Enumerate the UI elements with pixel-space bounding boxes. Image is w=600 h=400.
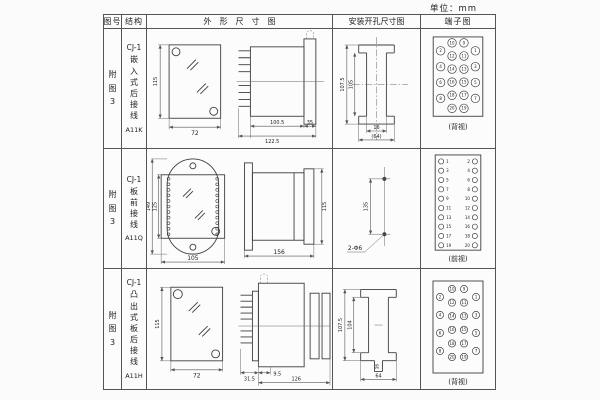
outline-cell-row3: 115 72 31.5 9.5 126 [147,269,333,389]
extension-lines [345,45,394,142]
dim-slot-width: 16 [373,125,379,131]
dim-slot-width: 16 [374,364,379,370]
view-label: (背视) [448,377,468,386]
dim-pin-depth: 31.5 [244,377,255,383]
figure-no-row1: 附图3 [104,29,122,149]
terminal-circles: 1357911131517192468101214161820 [439,159,478,248]
outline-cell-row2: 149 125 105 156 115 [147,149,333,269]
dim-offset: 9.5 [273,372,281,378]
svg-text:18: 18 [465,233,471,238]
view-label: (前视) [448,254,468,263]
install-hole-drawing-a11k: 107.5 105 16 (64) [333,29,420,148]
svg-text:11: 11 [461,300,467,305]
dim-outer-height: 107.5 [340,77,346,91]
dim-flange: 35 [307,120,313,126]
svg-text:8: 8 [439,348,442,353]
svg-text:19: 19 [446,243,452,248]
dimension-lines [160,45,316,136]
structure-model: CJ-1 [127,175,142,184]
terminal-circles: 2468101214161820911131517191357 [436,285,479,360]
front-view [169,45,221,118]
front-view [171,287,223,361]
svg-text:12: 12 [450,53,456,58]
dim-depth-total: 122.5 [265,139,279,145]
svg-text:18: 18 [449,341,455,346]
terminal-cell-row3: 2468101214161820911131517191357 (背视) [421,269,495,389]
svg-text:10: 10 [449,286,455,291]
svg-text:6: 6 [467,178,470,183]
svg-text:5: 5 [475,330,478,335]
svg-text:19: 19 [461,106,467,111]
svg-text:2: 2 [467,159,470,164]
terminal-circles: 2468101214161820911131517191357 [436,39,479,113]
svg-text:1: 1 [446,159,449,164]
dim-depth-total: 126 [291,377,300,383]
dim-outer-height: 107.5 [338,318,344,332]
dimension-table: 图号 结构 外形尺寸图 安装开孔尺寸图 端子图 附图3 CJ-1 嵌入式后接线 … [103,14,496,390]
install-hole-drawing-a11q: 135 2-Φ6 [333,149,420,268]
svg-text:10: 10 [450,40,456,45]
svg-text:20: 20 [450,106,456,111]
svg-text:3: 3 [475,312,478,317]
dim-overall-width: 64 [375,373,381,379]
header-structure: 结构 [122,15,147,29]
terminal-drawing-rear-a11k: 2468101214161820911131517191357 (背视) [421,29,495,148]
terminal-drawing-front-a11q: 1357911131517192468101214161820 (前视) [421,149,495,268]
hook-dashed [306,31,313,39]
structure-model: CJ-1 [127,278,142,287]
svg-text:8: 8 [467,187,470,192]
structure-mounting: 嵌入式后接线 [129,54,139,121]
svg-text:12: 12 [465,205,471,210]
structure-code: A11H [125,372,143,380]
dim-overall-width: (64) [371,134,381,140]
structure-row1: CJ-1 嵌入式后接线 A11K [122,29,147,149]
structure-code: A11K [126,126,143,134]
svg-text:7: 7 [446,187,449,192]
outline-drawing-a11q: 149 125 105 156 115 [147,149,332,268]
svg-text:10: 10 [465,196,471,201]
extension-lines [158,45,316,138]
hole-callout: 2-Φ6 [348,245,363,252]
structure-model: CJ-1 [127,43,142,52]
front-view [161,159,224,254]
svg-text:17: 17 [461,93,467,98]
svg-text:18: 18 [450,93,456,98]
dim-height: 115 [153,77,159,86]
dim-side-height: 115 [322,202,328,211]
svg-text:14: 14 [449,314,455,319]
figure-no-row3: 附图3 [104,269,122,389]
svg-text:5: 5 [446,178,449,183]
svg-text:11: 11 [446,205,452,210]
svg-text:16: 16 [465,224,471,229]
svg-text:20: 20 [449,354,455,359]
svg-text:4: 4 [467,168,470,173]
view-label: (背视) [448,122,468,131]
svg-text:17: 17 [461,341,467,346]
svg-text:6: 6 [439,330,442,335]
svg-text:15: 15 [461,327,467,332]
svg-text:14: 14 [450,66,456,71]
unit-label: 单位：mm [430,2,477,14]
outline-drawing-a11h: 115 72 31.5 9.5 126 [147,269,332,389]
svg-text:11: 11 [461,53,467,58]
extension-lines [369,179,391,234]
install-cell-row1: 107.5 105 16 (64) [333,29,421,149]
structure-row2: CJ-1 板前接线 A11Q [122,149,147,269]
header-terminal: 端子图 [421,15,495,29]
install-hole-drawing-a11h: 107.5 104 16 64 [333,269,420,389]
outline-drawing-a11k: 115 72 100.5 35 122.5 [147,29,332,148]
structure-mounting: 板前接线 [129,186,139,231]
svg-text:13: 13 [446,215,452,220]
figure-no-label: 附图3 [108,309,118,350]
dim-width: 72 [191,130,199,137]
svg-text:12: 12 [449,300,455,305]
install-cell-row3: 107.5 104 16 64 [333,269,421,389]
terminal-pin-dots [167,177,218,235]
svg-text:16: 16 [450,80,456,85]
outline-cell-row1: 115 72 100.5 35 122.5 [147,29,333,149]
svg-text:9: 9 [463,286,466,291]
dim-width: 72 [193,373,201,380]
header-outline: 外形尺寸图 [147,15,333,29]
svg-text:17: 17 [446,233,452,238]
figure-no-row2: 附图3 [104,149,122,269]
terminal-cell-row1: 2468101214161820911131517191357 (背视) [421,29,495,149]
svg-text:16: 16 [449,327,455,332]
dim-inner-height: 104 [347,320,353,329]
svg-text:4: 4 [439,312,442,317]
svg-text:13: 13 [461,66,467,71]
dim-inner-height: 105 [348,80,354,89]
svg-text:15: 15 [461,80,467,85]
terminal-drawing-rear-a11h: 2468101214161820911131517191357 (背视) [421,269,495,389]
structure-code: A11Q [125,234,143,242]
dim-outer-height: 149 [147,202,152,211]
svg-text:14: 14 [465,215,471,220]
figure-no-label: 附图3 [108,68,118,109]
side-view [240,283,330,367]
dim-depth: 156 [273,249,285,256]
dim-width: 105 [187,255,199,262]
cutout-shape [361,289,397,371]
side-view [244,163,313,250]
install-cell-row2: 135 2-Φ6 [333,149,421,269]
svg-text:20: 20 [465,243,471,248]
header-figure-no: 图号 [104,15,122,29]
svg-text:7: 7 [475,348,478,353]
svg-text:9: 9 [446,196,449,201]
dim-depth-body: 100.5 [270,120,284,126]
svg-text:3: 3 [446,168,449,173]
header-install: 安装开孔尺寸图 [333,15,421,29]
dim-hole-spacing: 135 [364,202,370,211]
svg-text:1: 1 [475,294,478,299]
dim-height: 115 [155,319,161,328]
dim-inner-height: 125 [153,202,159,211]
figure-no-label: 附图3 [108,188,118,229]
hook-dashed [260,274,267,283]
dimension-lines [347,45,394,140]
structure-row3: CJ-1 凸出式板后接线 A11H [122,269,147,389]
svg-text:13: 13 [461,314,467,319]
svg-text:19: 19 [461,354,467,359]
structure-mounting: 凸出式板后接线 [129,289,139,367]
svg-text:2: 2 [439,294,442,299]
terminal-cell-row2: 1357911131517192468101214161820 (前视) [421,149,495,269]
svg-text:15: 15 [446,224,452,229]
